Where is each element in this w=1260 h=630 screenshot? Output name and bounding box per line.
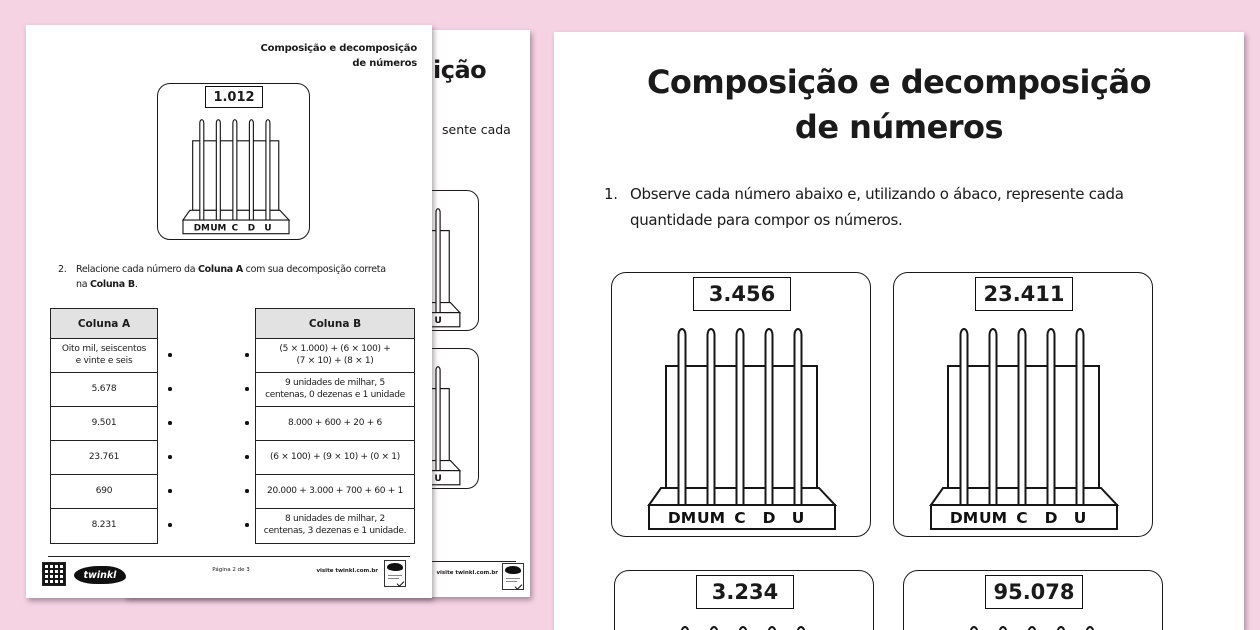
- abacus-column-label: UM: [979, 509, 1007, 527]
- abacus-column-label: DM: [950, 509, 978, 527]
- page-number-label: Página 2 de 3: [176, 567, 286, 573]
- connector-dot: [245, 489, 249, 493]
- page-title-fragment: ição: [433, 56, 486, 84]
- abacus-column-label: C: [232, 223, 238, 233]
- number-plate: 1.012: [205, 86, 263, 108]
- page-header: Composição e decomposição de números: [261, 41, 417, 71]
- abacus-column-label: D: [763, 509, 776, 527]
- twinkl-logo: twinkl: [74, 566, 126, 584]
- column-a-header: Coluna A: [51, 309, 157, 339]
- table-row: 690: [51, 475, 157, 509]
- abacus-graphic: DMUMCDU: [642, 321, 842, 531]
- abacus-column-label: U: [792, 509, 805, 527]
- abacus-card: 3.234 DMUMCDU: [614, 570, 874, 630]
- abacus-column-label: D: [1045, 509, 1058, 527]
- twinkl-cloud-icon: [387, 563, 403, 571]
- question-1: 1. Observe cada número abaixo e, utiliza…: [604, 182, 1204, 233]
- abacus-icon: DMUMCDU: [642, 321, 842, 531]
- number-plate: 3.234: [696, 575, 794, 609]
- abacus-graphic: DMUMCDU: [179, 115, 293, 235]
- table-row: 9 unidades de milhar, 5 centenas, 0 deze…: [256, 373, 414, 407]
- abacus-column-label: D: [248, 223, 255, 233]
- abacus-column-label: DM: [668, 509, 696, 527]
- table-row: 8.231: [51, 509, 157, 543]
- title-line2: de números: [554, 105, 1244, 150]
- footer-divider: [48, 556, 410, 557]
- table-row: 8.000 + 600 + 20 + 6: [256, 407, 414, 441]
- abacus-column-label: U: [434, 316, 441, 326]
- abacus-card: 23.411 DMUMCDU: [893, 272, 1153, 537]
- number-plate: 3.456: [693, 277, 791, 311]
- checkmark-icon: [515, 582, 523, 590]
- twinkl-cloud-icon: [505, 566, 521, 574]
- question-text: Relacione cada número da Coluna A com su…: [76, 262, 386, 292]
- abacus-column-label: U: [264, 223, 271, 233]
- abacus-card: 95.078 DMUMCDU: [903, 570, 1163, 630]
- table-row: (5 × 1.000) + (6 × 100) + (7 × 10) + (8 …: [256, 339, 414, 373]
- question-number: 1.: [604, 182, 630, 233]
- question-text: Observe cada número abaixo e, utilizando…: [630, 182, 1124, 233]
- table-row: 23.761: [51, 441, 157, 475]
- number-plate: 23.411: [975, 277, 1073, 311]
- abacus-column-label: C: [1016, 509, 1027, 527]
- connector-dot: [245, 421, 249, 425]
- table-row: (6 × 100) + (9 × 10) + (0 × 1): [256, 441, 414, 475]
- quality-badge-icon: [384, 560, 406, 587]
- quality-badge-icon: [502, 563, 524, 590]
- number-plate: 95.078: [985, 575, 1083, 609]
- abacus-column-label: UM: [210, 223, 226, 233]
- table-row: Oito mil, seiscentos e vinte e seis: [51, 339, 157, 373]
- page-preview-right: Composição e decomposição de números 1. …: [554, 32, 1244, 630]
- connector-dot: [168, 455, 172, 459]
- abacus-column-label: UM: [697, 509, 725, 527]
- instruction-fragment: sente cada: [442, 122, 511, 137]
- abacus-icon: DMUMCDU: [179, 115, 293, 235]
- table-row: 8 unidades de milhar, 2 centenas, 3 deze…: [256, 509, 414, 543]
- column-b-table: Coluna B (5 × 1.000) + (6 × 100) + (7 × …: [255, 308, 415, 544]
- footer-website-link: visite twinkl.com.br: [316, 568, 378, 574]
- connector-dot: [245, 353, 249, 357]
- connector-dot: [168, 489, 172, 493]
- abacus-icon: DMUMCDU: [645, 619, 845, 630]
- page-preview-left: Composição e decomposição de números 1.0…: [26, 25, 432, 598]
- header-line2: de números: [261, 56, 417, 71]
- abacus-card: 3.456 DMUMCDU: [611, 272, 871, 537]
- connector-dot: [168, 387, 172, 391]
- connector-dot: [245, 387, 249, 391]
- table-row: 20.000 + 3.000 + 700 + 60 + 1: [256, 475, 414, 509]
- connector-dot: [168, 353, 172, 357]
- abacus-column-label: U: [434, 474, 441, 484]
- connector-dot: [168, 523, 172, 527]
- abacus-column-label: DM: [194, 223, 210, 233]
- abacus-icon: DMUMCDU: [924, 321, 1124, 531]
- title-line1: Composição e decomposição: [554, 60, 1244, 105]
- worksheet-preview: ição sente cada DMUMCDU DMUMCDU visite t…: [0, 0, 1260, 630]
- abacus-column-label: C: [734, 509, 745, 527]
- example-abacus-card: 1.012 DMUMCDU: [157, 83, 310, 240]
- header-line1: Composição e decomposição: [261, 41, 417, 56]
- abacus-graphic: DMUMCDU: [645, 619, 845, 630]
- footer-website-link: visite twinkl.com.br: [436, 570, 498, 576]
- table-row: 5.678: [51, 373, 157, 407]
- abacus-graphic: DMUMCDU: [934, 619, 1134, 630]
- question-number: 2.: [58, 262, 76, 292]
- connector-dot: [168, 421, 172, 425]
- column-a-table: Coluna A Oito mil, seiscentos e vinte e …: [50, 308, 158, 544]
- page-title: Composição e decomposição de números: [554, 60, 1244, 150]
- question-2: 2. Relacione cada número da Coluna A com…: [58, 262, 428, 292]
- abacus-icon: DMUMCDU: [934, 619, 1134, 630]
- connector-dot: [245, 455, 249, 459]
- checkmark-icon: [397, 579, 405, 587]
- table-row: 9.501: [51, 407, 157, 441]
- abacus-column-label: U: [1074, 509, 1087, 527]
- column-b-header: Coluna B: [256, 309, 414, 339]
- connector-dot: [245, 523, 249, 527]
- qr-code-icon: [43, 563, 65, 585]
- abacus-graphic: DMUMCDU: [924, 321, 1124, 531]
